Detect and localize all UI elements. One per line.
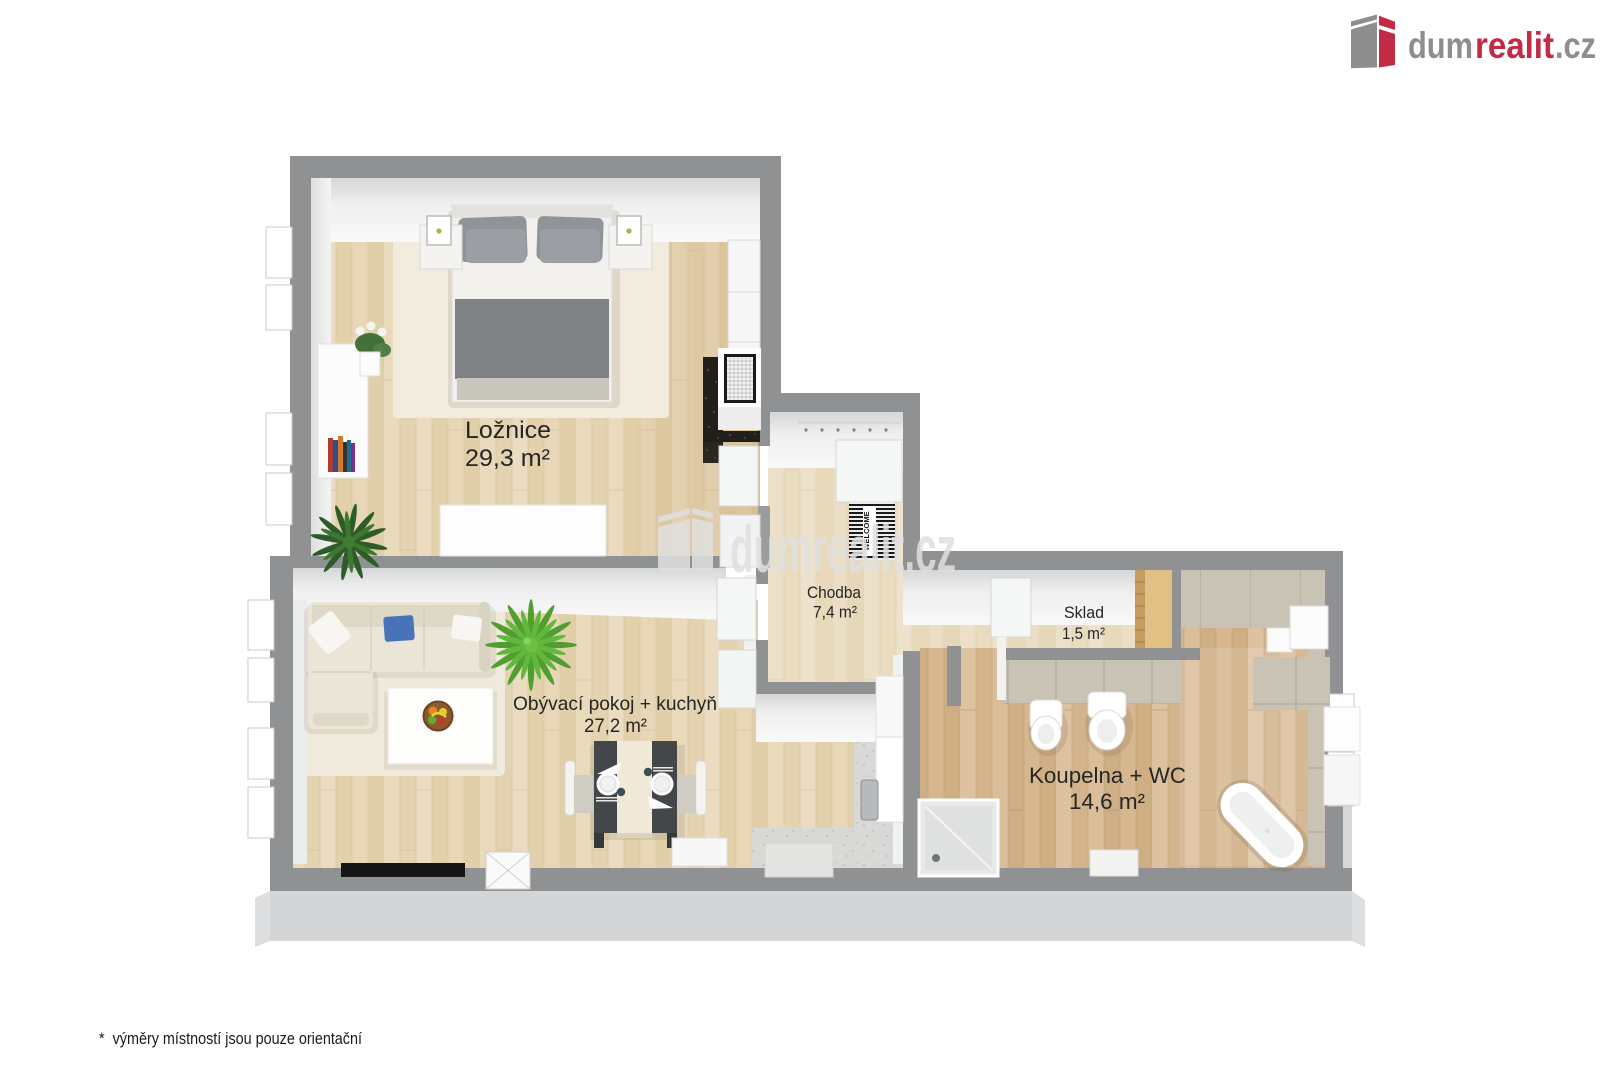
svg-text:dumrealit.cz: dumrealit.cz <box>730 512 956 586</box>
svg-text:1,5 m²: 1,5 m² <box>1062 625 1105 643</box>
svg-text:Sklad: Sklad <box>1064 604 1104 622</box>
svg-text:.cz: .cz <box>1555 25 1596 66</box>
svg-text:Obývací pokoj + kuchyň: Obývací pokoj + kuchyň <box>513 693 717 715</box>
svg-text:Ložnice: Ložnice <box>465 417 551 444</box>
svg-text:Koupelna + WC: Koupelna + WC <box>1029 763 1186 788</box>
svg-text:7,4 m²: 7,4 m² <box>813 604 857 622</box>
svg-text:14,6 m²: 14,6 m² <box>1069 789 1145 814</box>
svg-text:29,3 m²: 29,3 m² <box>465 445 550 472</box>
svg-text:27,2 m²: 27,2 m² <box>584 715 647 737</box>
svg-text:* výměry místností jsou pouze: * výměry místností jsou pouze orientační <box>99 1029 362 1048</box>
svg-text:realit: realit <box>1475 25 1554 66</box>
svg-text:Chodba: Chodba <box>807 584 862 602</box>
svg-text:dum: dum <box>1408 25 1473 66</box>
